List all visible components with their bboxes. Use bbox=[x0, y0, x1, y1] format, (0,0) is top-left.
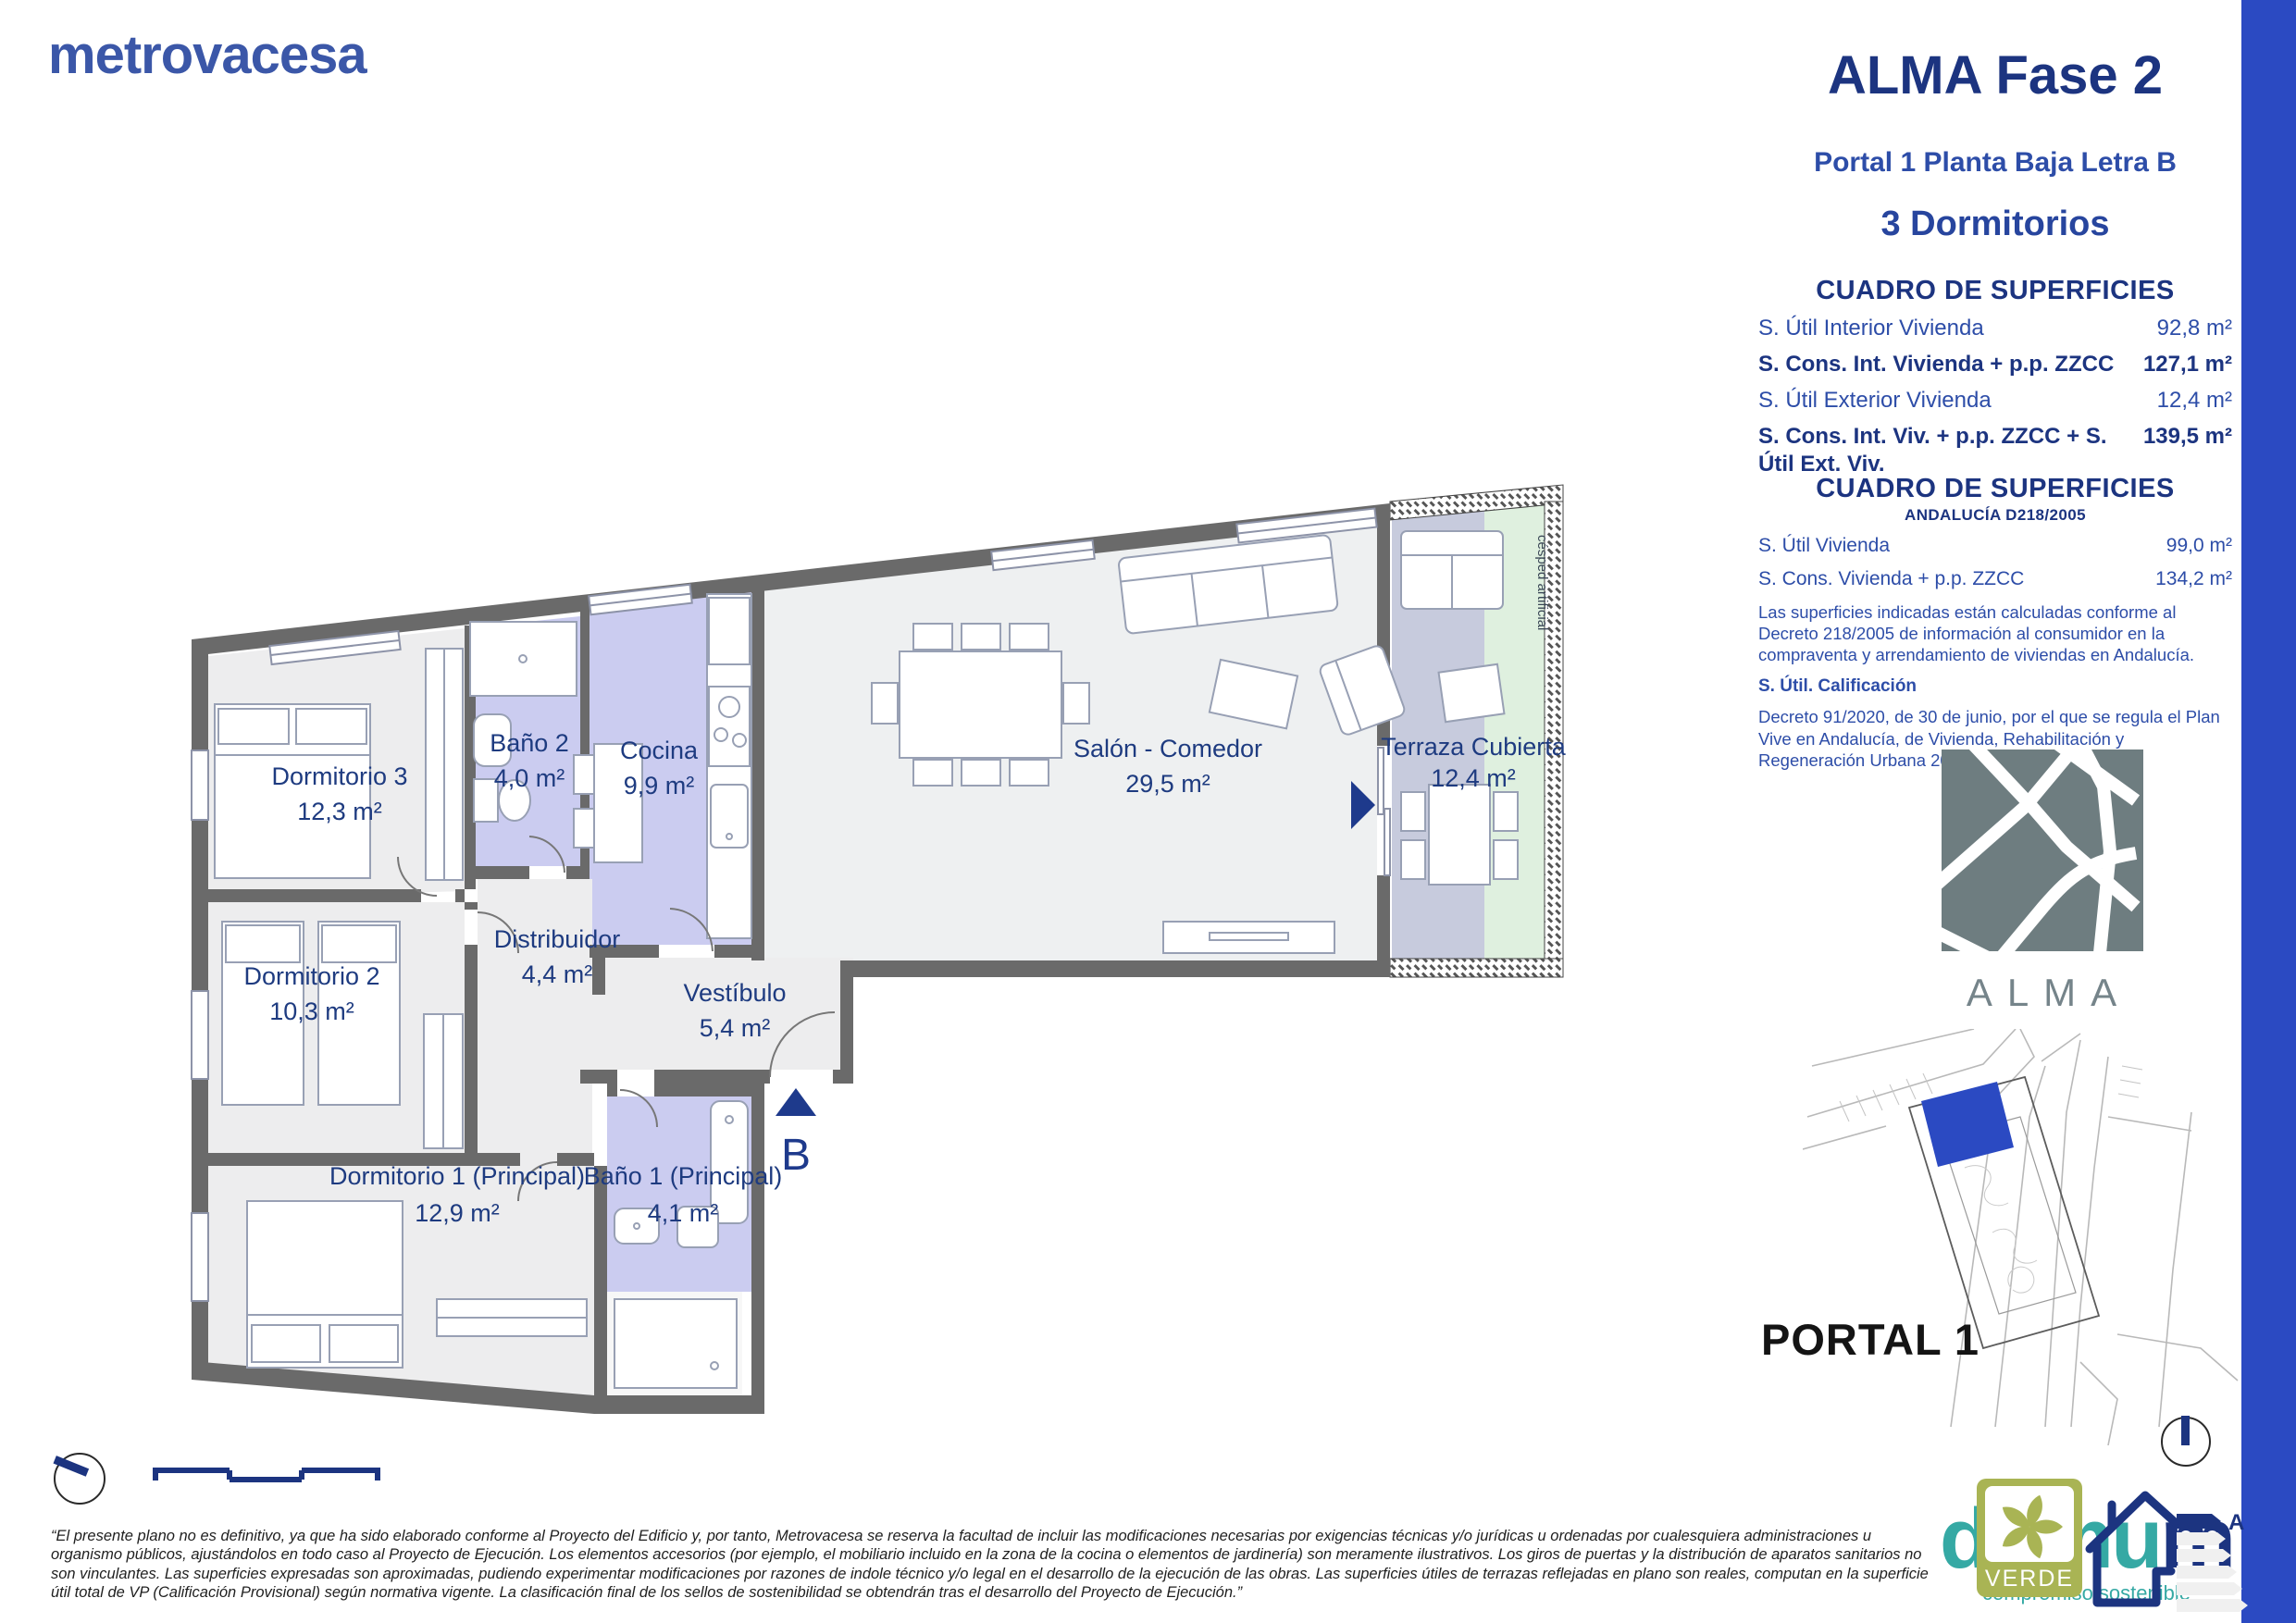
alma-logo: ALMA bbox=[1942, 750, 2143, 1015]
svg-text:Baño 1 (Principal): Baño 1 (Principal) bbox=[584, 1162, 783, 1190]
svg-text:29,5 m²: 29,5 m² bbox=[1125, 770, 1210, 798]
svg-text:Vestíbulo: Vestíbulo bbox=[683, 979, 786, 1007]
svg-text:Dormitorio 2: Dormitorio 2 bbox=[243, 962, 379, 990]
verde-certification-logo: VERDE bbox=[1977, 1479, 2082, 1602]
surfaces-table: CUADRO DE SUPERFICIES S. Útil Interior V… bbox=[1758, 276, 2232, 478]
table-row: S. Útil Interior Vivienda 92,8 m² bbox=[1758, 315, 2232, 342]
svg-text:Terraza Cubierta: Terraza Cubierta bbox=[1381, 733, 1567, 761]
row-label: S. Útil Vivienda bbox=[1758, 534, 2166, 558]
svg-text:12,9 m²: 12,9 m² bbox=[415, 1199, 500, 1227]
svg-text:4,0 m²: 4,0 m² bbox=[494, 764, 565, 792]
svg-text:Cocina: Cocina bbox=[620, 737, 699, 764]
surfaces-table-title: CUADRO DE SUPERFICIES bbox=[1758, 474, 2232, 504]
row-value: 134,2 m² bbox=[2155, 567, 2232, 591]
cesped-artificial-label: césped artificial bbox=[1534, 535, 1550, 630]
svg-text:12,3 m²: 12,3 m² bbox=[297, 798, 382, 825]
surfaces-table-title: CUADRO DE SUPERFICIES bbox=[1758, 276, 2232, 306]
shower-tray-icon bbox=[614, 1299, 737, 1388]
unit-subtitle: Portal 1 Planta Baja Letra B bbox=[1758, 147, 2232, 179]
svg-text:9,9 m²: 9,9 m² bbox=[624, 772, 695, 799]
row-label: S. Cons. Int. Vivienda + p.p. ZZCC bbox=[1758, 351, 2143, 378]
kitchen-sink-icon bbox=[711, 785, 748, 848]
decreto-218-note: Las superficies indicadas están calculad… bbox=[1758, 601, 2232, 666]
wardrobe-icon bbox=[426, 649, 463, 880]
alma-map-icon bbox=[1942, 750, 2143, 951]
row-label: S. Cons. Vivienda + p.p. ZZCC bbox=[1758, 567, 2155, 591]
graphic-scale-bar bbox=[155, 1468, 378, 1481]
cooktop-icon bbox=[709, 687, 750, 766]
wardrobe-icon bbox=[437, 1299, 587, 1336]
verde-wordmark: VERDE bbox=[1985, 1566, 2074, 1592]
row-label: S. Útil Exterior Vivienda bbox=[1758, 387, 2157, 415]
shower-icon bbox=[470, 622, 577, 696]
svg-text:Dormitorio 1 (Principal): Dormitorio 1 (Principal) bbox=[329, 1162, 585, 1190]
svg-text:12,4 m²: 12,4 m² bbox=[1431, 764, 1516, 792]
row-value: 139,5 m² bbox=[2143, 423, 2232, 451]
svg-text:Baño 2: Baño 2 bbox=[490, 729, 569, 757]
energy-rating-icon: A bbox=[2082, 1473, 2249, 1621]
svg-text:Salón - Comedor: Salón - Comedor bbox=[1074, 735, 1262, 762]
alma-wordmark: ALMA bbox=[1942, 971, 2143, 1015]
side-table-icon bbox=[1439, 664, 1505, 722]
double-bed-icon bbox=[215, 704, 370, 878]
row-value: 99,0 m² bbox=[2166, 534, 2232, 558]
surfaces-table-andalucia: CUADRO DE SUPERFICIES ANDALUCÍA D218/200… bbox=[1758, 474, 2232, 771]
svg-text:5,4 m²: 5,4 m² bbox=[700, 1014, 771, 1042]
tv-console-icon bbox=[1163, 922, 1334, 953]
row-label: S. Útil Interior Vivienda bbox=[1758, 315, 2157, 342]
surfaces-table-subtitle: ANDALUCÍA D218/2005 bbox=[1758, 506, 2232, 525]
right-accent-bar bbox=[2241, 0, 2296, 1623]
floorplan-document-page: metrovacesa ALMA Fase 2 Portal 1 Planta … bbox=[0, 0, 2296, 1623]
metrovacesa-logo: metrovacesa bbox=[48, 24, 366, 86]
outdoor-sofa-icon bbox=[1401, 531, 1503, 609]
portal-label: PORTAL 1 bbox=[1761, 1314, 1980, 1365]
fridge-icon bbox=[709, 598, 750, 664]
page-title: ALMA Fase 2 bbox=[1758, 44, 2232, 106]
table-row: S. Útil Exterior Vivienda 12,4 m² bbox=[1758, 387, 2232, 415]
entrance-arrow-icon bbox=[776, 1088, 816, 1116]
bedrooms-subtitle: 3 Dormitorios bbox=[1758, 204, 2232, 244]
double-bed-icon bbox=[247, 1201, 403, 1368]
table-row: S. Cons. Vivienda + p.p. ZZCC 134,2 m² bbox=[1758, 567, 2232, 591]
wardrobe-icon bbox=[424, 1014, 463, 1148]
energy-bar-a bbox=[2177, 1514, 2221, 1529]
unit-location-marker bbox=[1921, 1082, 2014, 1167]
row-value: 127,1 m² bbox=[2143, 351, 2232, 378]
north-compass-icon bbox=[2156, 1408, 2215, 1478]
entrance-letter: B bbox=[781, 1131, 811, 1180]
header-block: ALMA Fase 2 Portal 1 Planta Baja Letra B… bbox=[1758, 44, 2232, 244]
energy-rating-letter: A bbox=[2228, 1510, 2244, 1535]
svg-text:Distribuidor: Distribuidor bbox=[494, 925, 621, 953]
table-row: S. Útil Vivienda 99,0 m² bbox=[1758, 534, 2232, 558]
energy-bars bbox=[2177, 1532, 2248, 1612]
row-value: 92,8 m² bbox=[2157, 315, 2232, 342]
room-floors bbox=[208, 503, 1545, 1395]
row-label: S. Cons. Int. Viv. + p.p. ZZCC + S. Útil… bbox=[1758, 423, 2143, 478]
house-icon bbox=[2090, 1495, 2175, 1603]
calificacion-subhead: S. Útil. Calificación bbox=[1758, 676, 2232, 697]
svg-text:4,4 m²: 4,4 m² bbox=[522, 960, 593, 988]
svg-text:4,1 m²: 4,1 m² bbox=[648, 1199, 719, 1227]
site-plan-thumbnail bbox=[1803, 1029, 2242, 1450]
svg-text:10,3 m²: 10,3 m² bbox=[269, 997, 354, 1025]
legal-disclaimer: “El presente plano no es definitivo, ya … bbox=[51, 1527, 1934, 1603]
table-row: S. Cons. Int. Vivienda + p.p. ZZCC 127,1… bbox=[1758, 351, 2232, 378]
table-row: S. Cons. Int. Viv. + p.p. ZZCC + S. Útil… bbox=[1758, 423, 2232, 478]
row-value: 12,4 m² bbox=[2157, 387, 2232, 415]
floor-plan: B Dormitorio 3 12,3 m² Baño 2 4,0 m² Coc… bbox=[159, 477, 1584, 1444]
scale-and-compass bbox=[46, 1442, 435, 1520]
svg-text:Dormitorio 3: Dormitorio 3 bbox=[271, 762, 407, 790]
